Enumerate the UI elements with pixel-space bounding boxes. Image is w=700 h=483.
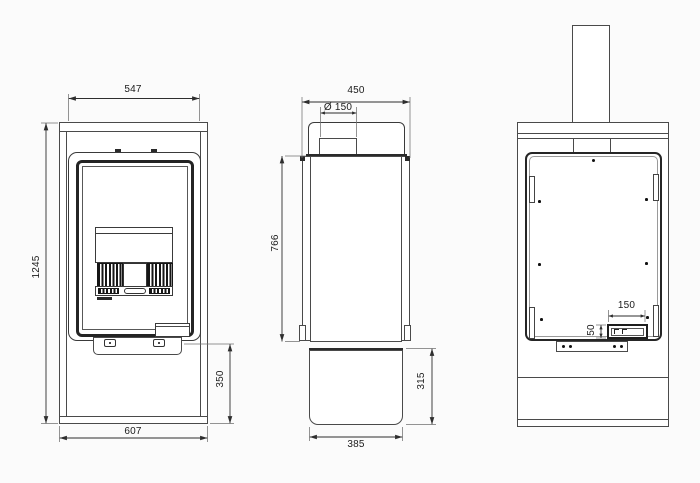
front-top-plate-line <box>60 131 207 132</box>
burner-pill <box>124 288 146 294</box>
screw-dot <box>538 263 541 266</box>
rear-bracket-bottom-right <box>653 305 659 337</box>
burner-grille-left <box>97 263 123 287</box>
screw-dot <box>645 262 648 265</box>
screw-dot <box>158 342 161 345</box>
screw-dot <box>592 159 595 162</box>
rear-plinth-line <box>518 377 668 378</box>
rear-bracket-bottom-left <box>529 307 535 339</box>
burner-mini-grille-right <box>149 288 170 294</box>
screw-dot <box>538 200 541 203</box>
dim-front-plinth-height: 350 <box>216 362 226 396</box>
flue-pipe <box>572 25 610 124</box>
dim-rear-outlet-width: 150 <box>608 301 645 311</box>
dim-front-base-width: 607 <box>113 427 153 437</box>
dim-side-body-height: 766 <box>271 226 281 260</box>
rear-top-band-line <box>518 133 668 134</box>
side-body <box>310 156 402 342</box>
screw-dot <box>645 198 648 201</box>
ash-lip-tray-line <box>156 326 189 327</box>
side-foot-right <box>404 325 411 341</box>
dim-flue-diameter: Ø 150 <box>316 103 360 113</box>
side-pedestal <box>309 350 403 425</box>
front-side-panel-line-left <box>66 131 67 416</box>
burner-center-window <box>123 263 147 287</box>
outlet-louver-mark <box>614 329 619 334</box>
burner-mini-grille-left <box>98 288 119 294</box>
side-cap-left <box>300 156 305 161</box>
side-foot-left <box>299 325 306 341</box>
dim-side-plinth-height: 315 <box>417 364 427 398</box>
screw-dot <box>540 318 543 321</box>
rear-bottom-bracket <box>556 341 628 352</box>
dim-front-total-height: 1245 <box>32 250 42 284</box>
stove-technical-drawing: 547 1245 350 607 450 Ø 150 766 315 385 1… <box>0 0 700 483</box>
rear-top-band-bottom <box>518 138 668 139</box>
front-base-plate-line <box>60 416 207 417</box>
dim-side-total-depth: 450 <box>336 86 376 96</box>
outlet-louver-mark <box>622 329 627 334</box>
screw-dot <box>646 316 649 319</box>
burner-grille-right <box>147 263 173 287</box>
brand-logo-mark <box>97 297 112 300</box>
side-back-panel-strip <box>401 156 410 341</box>
side-cap-right <box>405 156 410 161</box>
flue-stub-left <box>573 139 574 153</box>
flue-stub-right <box>610 139 611 153</box>
screw-dot <box>109 342 112 345</box>
rear-base-inner-line <box>518 419 668 420</box>
rear-bracket-top-left <box>529 176 535 203</box>
dim-front-top-width: 547 <box>113 85 153 95</box>
rear-bracket-top-right <box>653 174 659 201</box>
dim-side-plinth-depth: 385 <box>336 440 376 450</box>
burner-chamber <box>95 233 173 263</box>
dim-rear-outlet-height: 50 <box>587 318 597 342</box>
